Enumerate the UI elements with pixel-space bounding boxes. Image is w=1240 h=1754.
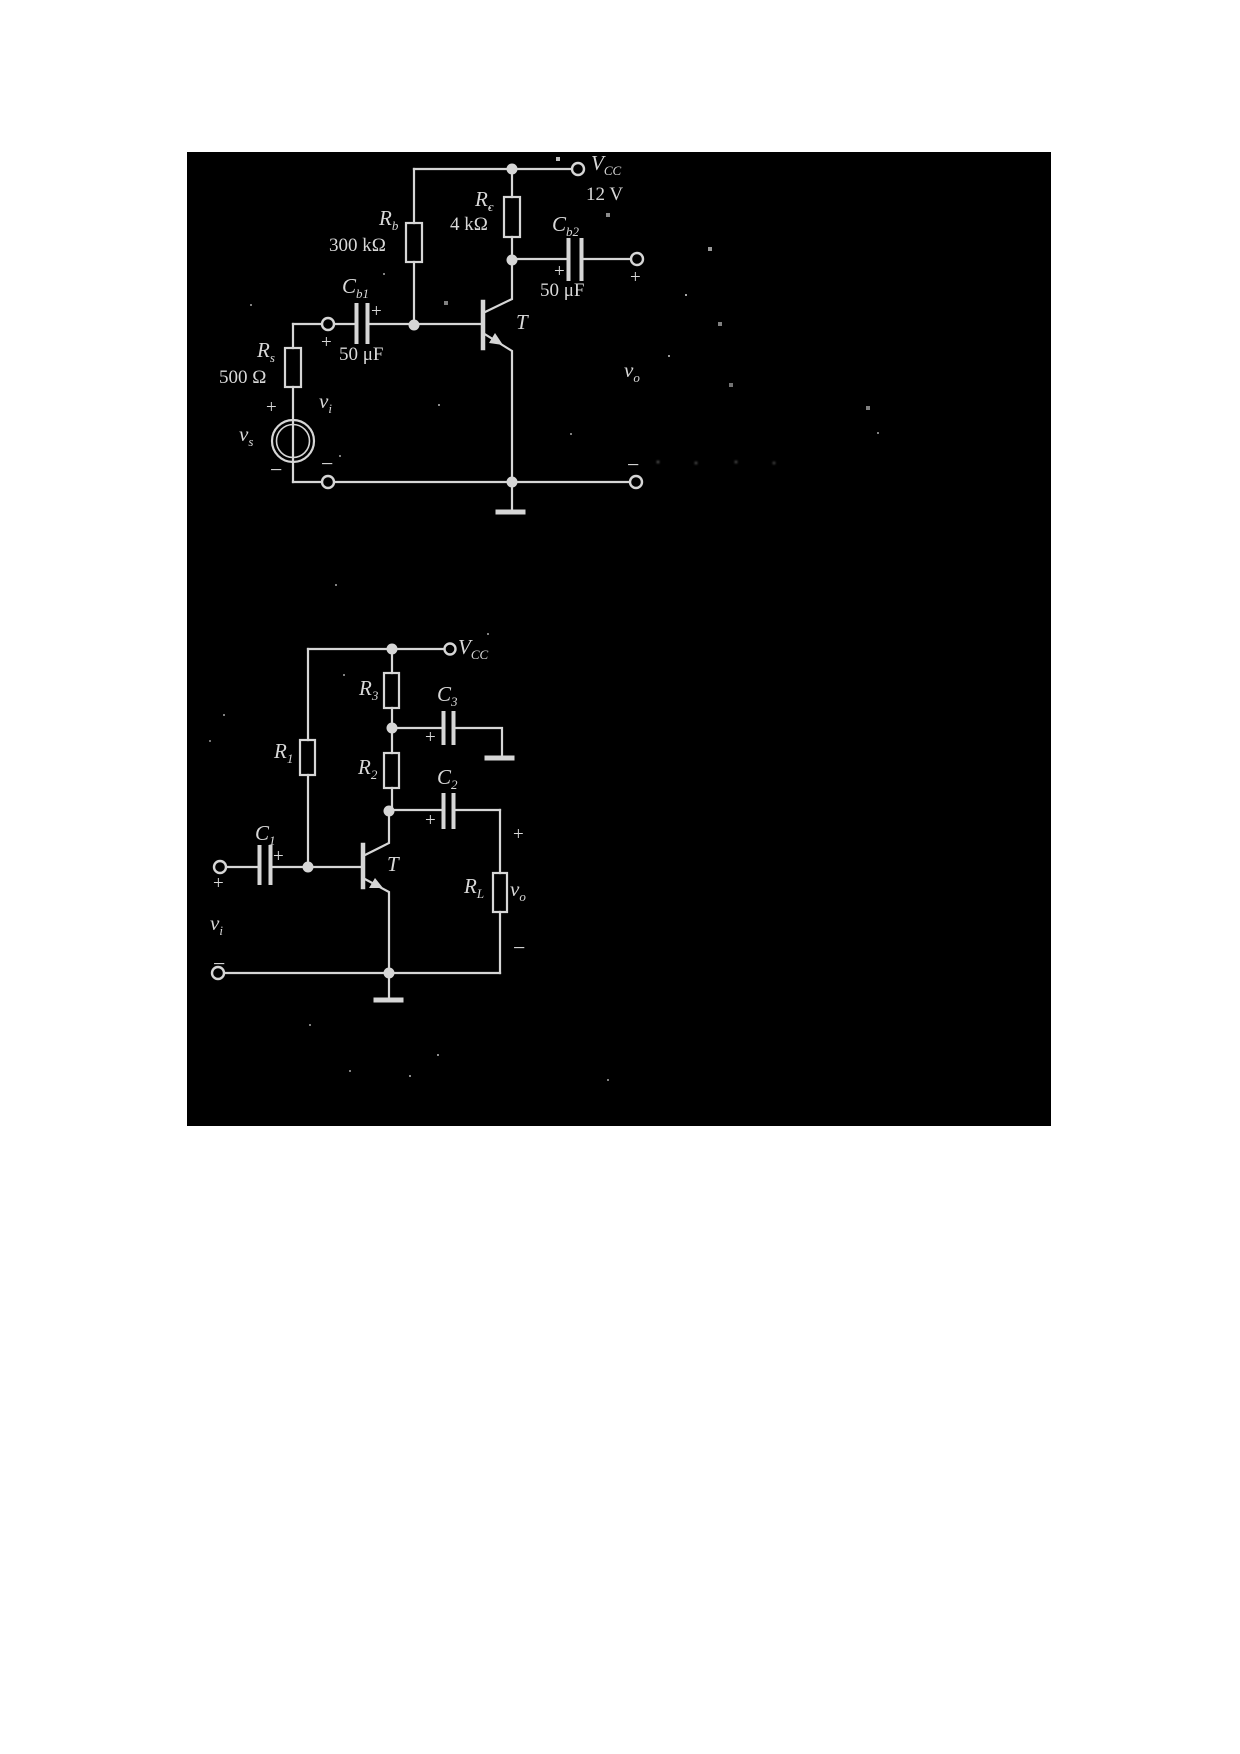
c2-resistor-r1 xyxy=(300,740,315,775)
c2-c2-label: C2 xyxy=(437,767,458,791)
c1-resistor-rs xyxy=(285,348,301,387)
vi-symbol: v xyxy=(319,389,328,413)
junction-dot xyxy=(507,255,518,266)
resistor-body xyxy=(493,873,507,912)
c1-cb1-label: Cb1 xyxy=(342,276,369,300)
c2-transistor-label: T xyxy=(387,854,399,875)
c2-resistor-r3 xyxy=(384,673,399,708)
c2-r2-label: R2 xyxy=(358,757,377,781)
vo2-symbol: v xyxy=(510,877,519,901)
c1-emitter-wire xyxy=(483,333,512,482)
c1-rs-value: 500 Ω xyxy=(219,368,266,387)
c2-c2-plus: + xyxy=(425,811,436,830)
c1-capacitor-cb1 xyxy=(357,305,368,342)
input-terminal xyxy=(214,861,226,873)
rs-symbol: R xyxy=(257,338,270,362)
c1-input-plus: + xyxy=(321,333,332,352)
c1-output-minus: − xyxy=(627,458,639,471)
output-ground-terminal xyxy=(630,476,642,488)
cb2-subscript: b2 xyxy=(566,224,579,239)
c1-cb1-plus: + xyxy=(371,302,382,321)
c2-vcc-label: VCC xyxy=(458,637,488,661)
c1-rb-label: Rb xyxy=(379,208,398,232)
rc-subscript: c xyxy=(488,199,494,214)
rl-subscript: L xyxy=(477,886,484,901)
c2-capacitor-c2 xyxy=(444,795,454,827)
c2-input-plus: + xyxy=(213,874,224,893)
c1-vi-label: vi xyxy=(319,391,332,415)
vs-symbol: v xyxy=(239,422,248,446)
c1-rc-value: 4 kΩ xyxy=(450,215,488,234)
c2-collector-wire xyxy=(363,811,389,856)
c1-vs-minus: − xyxy=(270,463,282,476)
c1-collector-wire xyxy=(483,260,512,313)
junction-dot xyxy=(387,644,398,655)
c2-symbol: C xyxy=(437,765,451,789)
r2-symbol: R xyxy=(358,755,371,779)
resistor-body xyxy=(300,740,315,775)
c1-cb2-plus: + xyxy=(554,262,565,281)
resistor-body xyxy=(384,753,399,788)
c2-resistor-rl xyxy=(493,873,507,912)
c1-vs-label: vs xyxy=(239,424,253,448)
c2-c3-branch xyxy=(392,728,502,757)
vo-subscript: o xyxy=(633,370,640,385)
output-terminal xyxy=(631,253,643,265)
resistor-body xyxy=(504,197,520,237)
rs-subscript: s xyxy=(270,350,275,365)
c1-vcc-value: 12 V xyxy=(586,185,623,204)
c2-capacitor-c3 xyxy=(444,713,454,743)
c2-emitter-wire xyxy=(363,878,389,973)
c1-rc-label: Rc xyxy=(475,189,494,213)
vi2-subscript: i xyxy=(219,923,223,938)
junction-dot xyxy=(303,862,314,873)
vo2-subscript: o xyxy=(519,889,526,904)
scanned-page: { "colors": { "paper": "#ffffff", "scan_… xyxy=(0,0,1240,1754)
c3-subscript: 3 xyxy=(451,694,458,709)
input-ground-terminal xyxy=(322,476,334,488)
vi2-symbol: v xyxy=(210,911,219,935)
rc-symbol: R xyxy=(475,187,488,211)
c1-rb-value: 300 kΩ xyxy=(329,236,386,255)
c2-terminals xyxy=(212,644,456,980)
c3-symbol: C xyxy=(437,682,451,706)
junction-dot xyxy=(387,723,398,734)
vi-subscript: i xyxy=(328,401,332,416)
input-terminal xyxy=(322,318,334,330)
c2-load-minus: − xyxy=(513,941,525,954)
r1-symbol: R xyxy=(274,739,287,763)
c2-subscript: 2 xyxy=(451,777,458,792)
c2-rl-label: RL xyxy=(464,876,484,900)
vo-symbol: v xyxy=(624,358,633,382)
vs-subscript: s xyxy=(248,434,253,449)
scan-noise xyxy=(187,152,189,154)
c2-c1-label: C1 xyxy=(255,823,276,847)
c2-vo-label: vo xyxy=(510,879,526,903)
cb2-symbol: C xyxy=(552,212,566,236)
c1-resistor-rb xyxy=(406,223,422,262)
c1-rs-label: Rs xyxy=(257,340,275,364)
rl-symbol: R xyxy=(464,874,477,898)
resistor-body xyxy=(406,223,422,262)
cb1-subscript: b1 xyxy=(356,286,369,301)
junction-dot xyxy=(507,477,518,488)
c2-c1-plus: + xyxy=(273,847,284,866)
vcc2-subscript: CC xyxy=(471,647,488,662)
c2-capacitor-c1 xyxy=(260,847,271,883)
c2-vi-label: vi xyxy=(210,913,223,937)
c1-vcc-label: VCC xyxy=(591,153,621,177)
vcc-terminal xyxy=(445,644,456,655)
c1-vo-label: vo xyxy=(624,360,640,384)
cb1-symbol: C xyxy=(342,274,356,298)
junction-dot xyxy=(384,968,395,979)
c1-vs-plus: + xyxy=(266,398,277,417)
junction-dot xyxy=(507,164,518,175)
c1-vi-minus: − xyxy=(321,457,333,470)
c2-input-minus: − xyxy=(213,957,225,970)
rb-subscript: b xyxy=(392,218,399,233)
r3-subscript: 3 xyxy=(372,688,379,703)
c1-cb1-value: 50 μF xyxy=(339,345,384,364)
vcc-terminal xyxy=(572,163,584,175)
r3-symbol: R xyxy=(359,676,372,700)
c2-resistor-r2 xyxy=(384,753,399,788)
c2-c3-plus: + xyxy=(425,728,436,747)
scan-region: VCC 12 V Rb 300 kΩ Rc 4 kΩ Cb1 + + 50 μF… xyxy=(187,152,1051,1126)
c2-load-plus: + xyxy=(513,825,524,844)
junction-dot xyxy=(384,806,395,817)
r1-subscript: 1 xyxy=(287,751,294,766)
c1-capacitor-cb2 xyxy=(569,240,582,279)
junction-dot xyxy=(409,320,420,331)
c1-cb2-label: Cb2 xyxy=(552,214,579,238)
c2-r1-label: R1 xyxy=(274,741,293,765)
rb-symbol: R xyxy=(379,206,392,230)
resistor-body xyxy=(285,348,301,387)
c1-resistor-rc xyxy=(504,197,520,237)
circuit-schematics xyxy=(187,152,1051,1126)
vcc-symbol: V xyxy=(591,152,604,175)
c1-transistor-label: T xyxy=(516,312,528,333)
c1cap-symbol: C xyxy=(255,821,269,845)
c2-c3-label: C3 xyxy=(437,684,458,708)
vcc-subscript: CC xyxy=(604,163,621,178)
c1-cb2-value: 50 μF xyxy=(540,281,585,300)
c1-output-plus: + xyxy=(630,268,641,287)
c2-r3-label: R3 xyxy=(359,678,378,702)
c1-junction-dots xyxy=(409,164,518,488)
resistor-body xyxy=(384,673,399,708)
r2-subscript: 2 xyxy=(371,767,378,782)
vcc2-symbol: V xyxy=(458,635,471,659)
